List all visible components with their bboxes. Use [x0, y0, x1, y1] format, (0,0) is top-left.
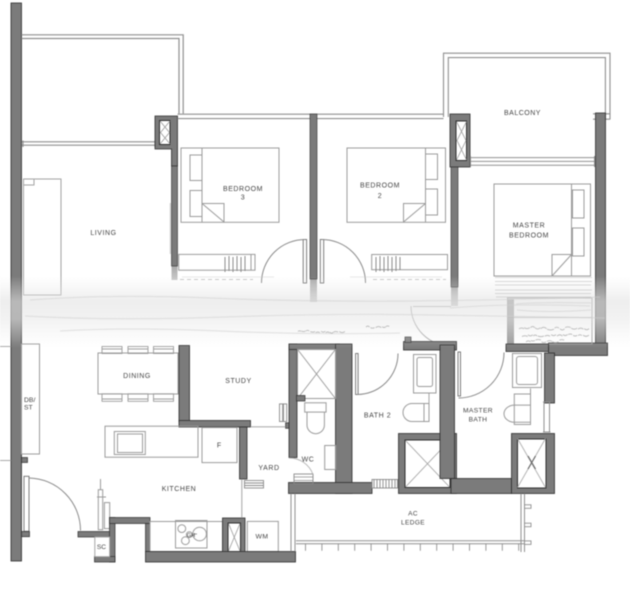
svg-text:DB/: DB/	[24, 397, 35, 404]
svg-text:STUDY: STUDY	[225, 378, 251, 385]
svg-text:BATH: BATH	[469, 417, 488, 424]
svg-text:F: F	[217, 443, 221, 450]
svg-text:BEDROOM: BEDROOM	[360, 183, 400, 190]
svg-text:AC: AC	[408, 511, 418, 518]
svg-text:YARD: YARD	[258, 465, 279, 472]
svg-text:MASTER: MASTER	[513, 223, 545, 230]
svg-text:BEDROOM: BEDROOM	[509, 232, 549, 239]
svg-text:2: 2	[378, 193, 382, 200]
svg-text:MASTER: MASTER	[463, 408, 493, 415]
svg-text:DINING: DINING	[123, 373, 151, 380]
svg-text:BEDROOM: BEDROOM	[223, 186, 263, 193]
svg-text:LIVING: LIVING	[90, 230, 116, 237]
svg-text:BALCONY: BALCONY	[504, 110, 541, 117]
svg-text:SC: SC	[97, 544, 106, 551]
svg-text:BATH 2: BATH 2	[364, 413, 391, 420]
svg-text:GH: GH	[187, 533, 195, 539]
svg-text:LEDGE: LEDGE	[401, 520, 425, 527]
svg-text:WM: WM	[256, 534, 269, 541]
svg-text:3: 3	[241, 195, 245, 202]
svg-text:ST: ST	[24, 405, 33, 412]
svg-text:KITCHEN: KITCHEN	[162, 486, 197, 493]
